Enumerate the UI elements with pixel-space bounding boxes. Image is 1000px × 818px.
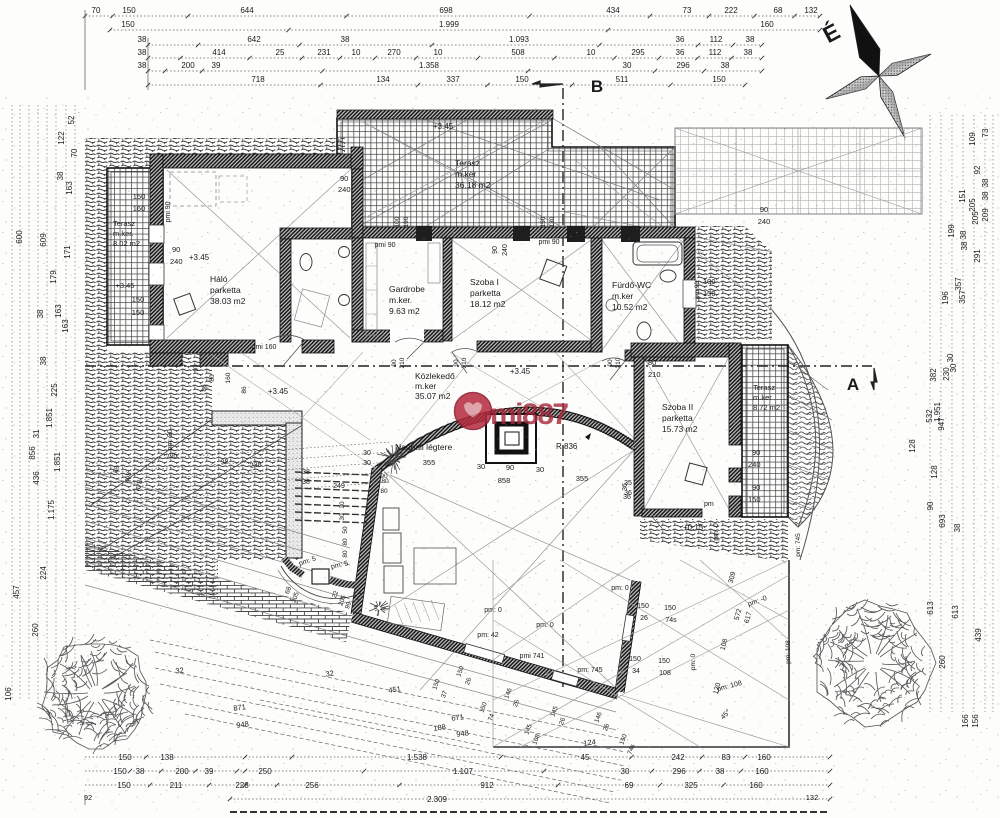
svg-text:73: 73	[683, 6, 692, 15]
svg-text:642: 642	[247, 35, 261, 44]
svg-text:112: 112	[709, 48, 722, 57]
svg-text:150: 150	[122, 6, 136, 15]
svg-text:511: 511	[616, 75, 629, 84]
svg-text:1.358: 1.358	[419, 61, 440, 70]
svg-text:270: 270	[387, 48, 401, 57]
svg-text:134: 134	[376, 75, 390, 84]
svg-text:38: 38	[721, 61, 730, 70]
svg-text:698: 698	[439, 6, 453, 15]
svg-text:296: 296	[676, 61, 690, 70]
svg-text:222: 222	[724, 6, 738, 15]
svg-text:70: 70	[92, 6, 101, 15]
svg-text:38: 38	[341, 35, 350, 44]
svg-text:25: 25	[276, 48, 285, 57]
svg-text:112: 112	[710, 35, 723, 44]
svg-text:644: 644	[240, 6, 254, 15]
svg-text:337: 337	[446, 75, 460, 84]
svg-text:38: 38	[744, 48, 753, 57]
svg-text:150: 150	[515, 75, 529, 84]
svg-text:1.093: 1.093	[509, 35, 530, 44]
svg-text:38: 38	[746, 35, 755, 44]
svg-text:38: 38	[138, 48, 147, 57]
svg-text:10: 10	[587, 48, 596, 57]
svg-text:508: 508	[511, 48, 525, 57]
svg-text:mi887: mi887	[490, 398, 568, 431]
svg-text:36: 36	[676, 35, 685, 44]
svg-text:414: 414	[212, 48, 226, 57]
svg-text:38: 38	[138, 61, 147, 70]
svg-text:38: 38	[138, 35, 147, 44]
svg-text:10: 10	[434, 48, 443, 57]
svg-text:39: 39	[212, 61, 221, 70]
svg-text:30: 30	[623, 61, 632, 70]
svg-text:68: 68	[774, 6, 783, 15]
svg-text:200: 200	[181, 61, 195, 70]
svg-text:10: 10	[352, 48, 361, 57]
svg-text:150: 150	[712, 75, 726, 84]
svg-text:718: 718	[251, 75, 265, 84]
svg-text:132: 132	[804, 6, 818, 15]
svg-text:295: 295	[631, 48, 645, 57]
svg-text:160: 160	[760, 20, 774, 29]
svg-text:150: 150	[121, 20, 135, 29]
svg-text:36: 36	[676, 48, 685, 57]
svg-text:1.999: 1.999	[439, 20, 460, 29]
svg-text:434: 434	[606, 6, 620, 15]
svg-text:231: 231	[317, 48, 331, 57]
